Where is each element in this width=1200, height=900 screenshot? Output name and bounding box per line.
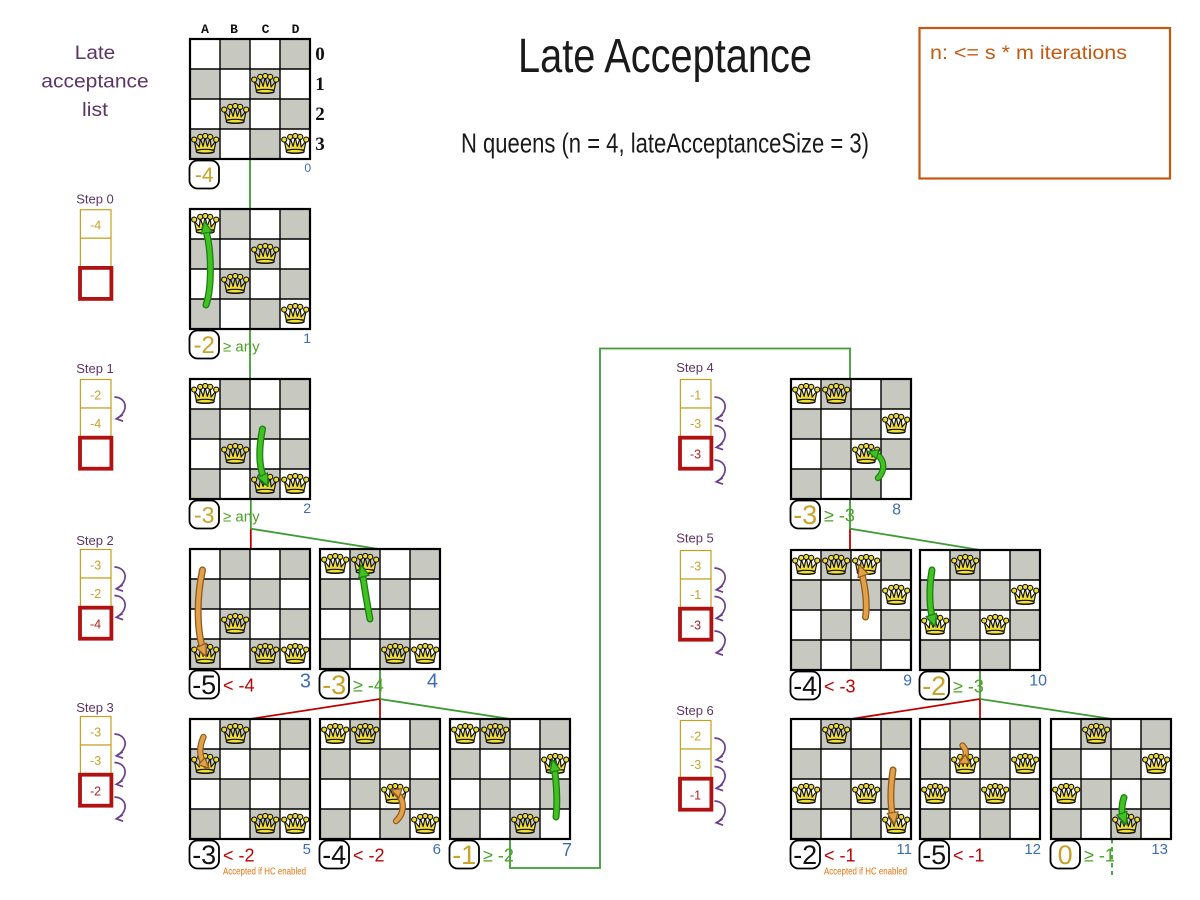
svg-text:Accepted if HC enabled: Accepted if HC enabled <box>223 866 306 878</box>
svg-text:2: 2 <box>315 104 325 125</box>
svg-text:Accepted if HC enabled: Accepted if HC enabled <box>824 866 907 878</box>
svg-text:-2: -2 <box>90 389 101 403</box>
svg-text:-5: -5 <box>922 840 946 870</box>
svg-text:B: B <box>230 22 238 37</box>
svg-text:Step 5: Step 5 <box>676 531 714 546</box>
svg-text:-5: -5 <box>192 670 216 700</box>
svg-text:-4: -4 <box>90 219 101 233</box>
svg-text:-1: -1 <box>452 840 476 870</box>
svg-text:1: 1 <box>303 330 311 346</box>
svg-text:-1: -1 <box>690 789 701 803</box>
svg-text:≥ -4: ≥ -4 <box>353 676 384 696</box>
svg-text:12: 12 <box>1024 841 1041 858</box>
svg-text:-3: -3 <box>690 417 701 431</box>
svg-text:-3: -3 <box>690 619 701 633</box>
svg-text:Step 2: Step 2 <box>76 533 114 548</box>
svg-text:Step 3: Step 3 <box>76 700 114 715</box>
svg-text:≥ -1: ≥ -1 <box>1084 846 1115 866</box>
svg-text:-2: -2 <box>922 671 946 701</box>
svg-text:-3: -3 <box>690 560 701 574</box>
svg-text:< -3: < -3 <box>824 677 856 697</box>
svg-text:< -2: < -2 <box>223 846 255 866</box>
svg-text:-2: -2 <box>90 785 101 799</box>
svg-text:-4: -4 <box>90 618 101 632</box>
svg-text:-3: -3 <box>194 502 214 528</box>
svg-text:D: D <box>292 22 300 37</box>
svg-text:≥ -2: ≥ -2 <box>483 846 514 866</box>
svg-text:Late Acceptance: Late Acceptance <box>518 30 812 83</box>
svg-text:11: 11 <box>896 841 912 858</box>
svg-text:-3: -3 <box>690 758 701 772</box>
svg-text:0: 0 <box>304 161 311 175</box>
svg-text:< -4: < -4 <box>223 676 255 696</box>
svg-text:list: list <box>82 99 109 121</box>
svg-text:acceptance: acceptance <box>41 71 149 93</box>
svg-text:0: 0 <box>315 44 325 65</box>
svg-text:< -1: < -1 <box>824 846 856 866</box>
svg-text:-2: -2 <box>194 332 215 359</box>
svg-text:2: 2 <box>303 500 311 516</box>
svg-text:≥ any: ≥ any <box>223 509 260 526</box>
svg-text:n: <= s * m iterations: n: <= s * m iterations <box>930 42 1127 64</box>
svg-text:-3: -3 <box>793 500 817 530</box>
svg-text:3: 3 <box>300 671 311 693</box>
svg-text:-4: -4 <box>322 840 346 870</box>
svg-text:C: C <box>262 22 270 37</box>
svg-text:-4: -4 <box>793 671 817 701</box>
svg-text:9: 9 <box>903 673 912 690</box>
svg-text:-3: -3 <box>90 559 101 573</box>
svg-text:N queens (n = 4, lateAcceptanc: N queens (n = 4, lateAcceptanceSize = 3) <box>461 128 869 159</box>
svg-text:0: 0 <box>1058 840 1073 870</box>
svg-text:A: A <box>201 22 209 37</box>
svg-text:-2: -2 <box>90 587 101 601</box>
svg-text:8: 8 <box>892 502 901 519</box>
svg-text:< -1: < -1 <box>953 846 985 866</box>
svg-text:-2: -2 <box>793 840 817 870</box>
svg-text:< -2: < -2 <box>353 846 385 866</box>
svg-text:Step 0: Step 0 <box>76 192 114 207</box>
svg-text:-4: -4 <box>90 417 101 431</box>
svg-text:7: 7 <box>562 840 572 860</box>
svg-text:-3: -3 <box>90 726 101 740</box>
svg-text:Step 4: Step 4 <box>676 360 714 375</box>
svg-text:≥ any: ≥ any <box>223 339 260 356</box>
svg-text:-1: -1 <box>690 389 701 403</box>
svg-text:-3: -3 <box>322 670 346 700</box>
svg-text:Step 6: Step 6 <box>676 703 714 718</box>
svg-text:Late: Late <box>75 42 116 64</box>
svg-text:-3: -3 <box>690 448 701 462</box>
svg-text:≥ -3: ≥ -3 <box>824 506 855 526</box>
svg-text:-2: -2 <box>690 730 701 744</box>
svg-text:≥ -3: ≥ -3 <box>953 677 984 697</box>
svg-text:-3: -3 <box>90 754 101 768</box>
svg-text:4: 4 <box>427 671 438 693</box>
svg-text:-4: -4 <box>195 164 214 187</box>
svg-text:3: 3 <box>315 134 325 155</box>
svg-text:1: 1 <box>315 74 325 95</box>
svg-text:5: 5 <box>303 841 311 858</box>
svg-text:-3: -3 <box>192 840 216 870</box>
svg-text:10: 10 <box>1029 673 1047 690</box>
svg-text:Step 1: Step 1 <box>76 361 114 376</box>
svg-text:-1: -1 <box>690 588 701 602</box>
svg-text:6: 6 <box>433 841 441 858</box>
svg-text:13: 13 <box>1151 841 1168 858</box>
